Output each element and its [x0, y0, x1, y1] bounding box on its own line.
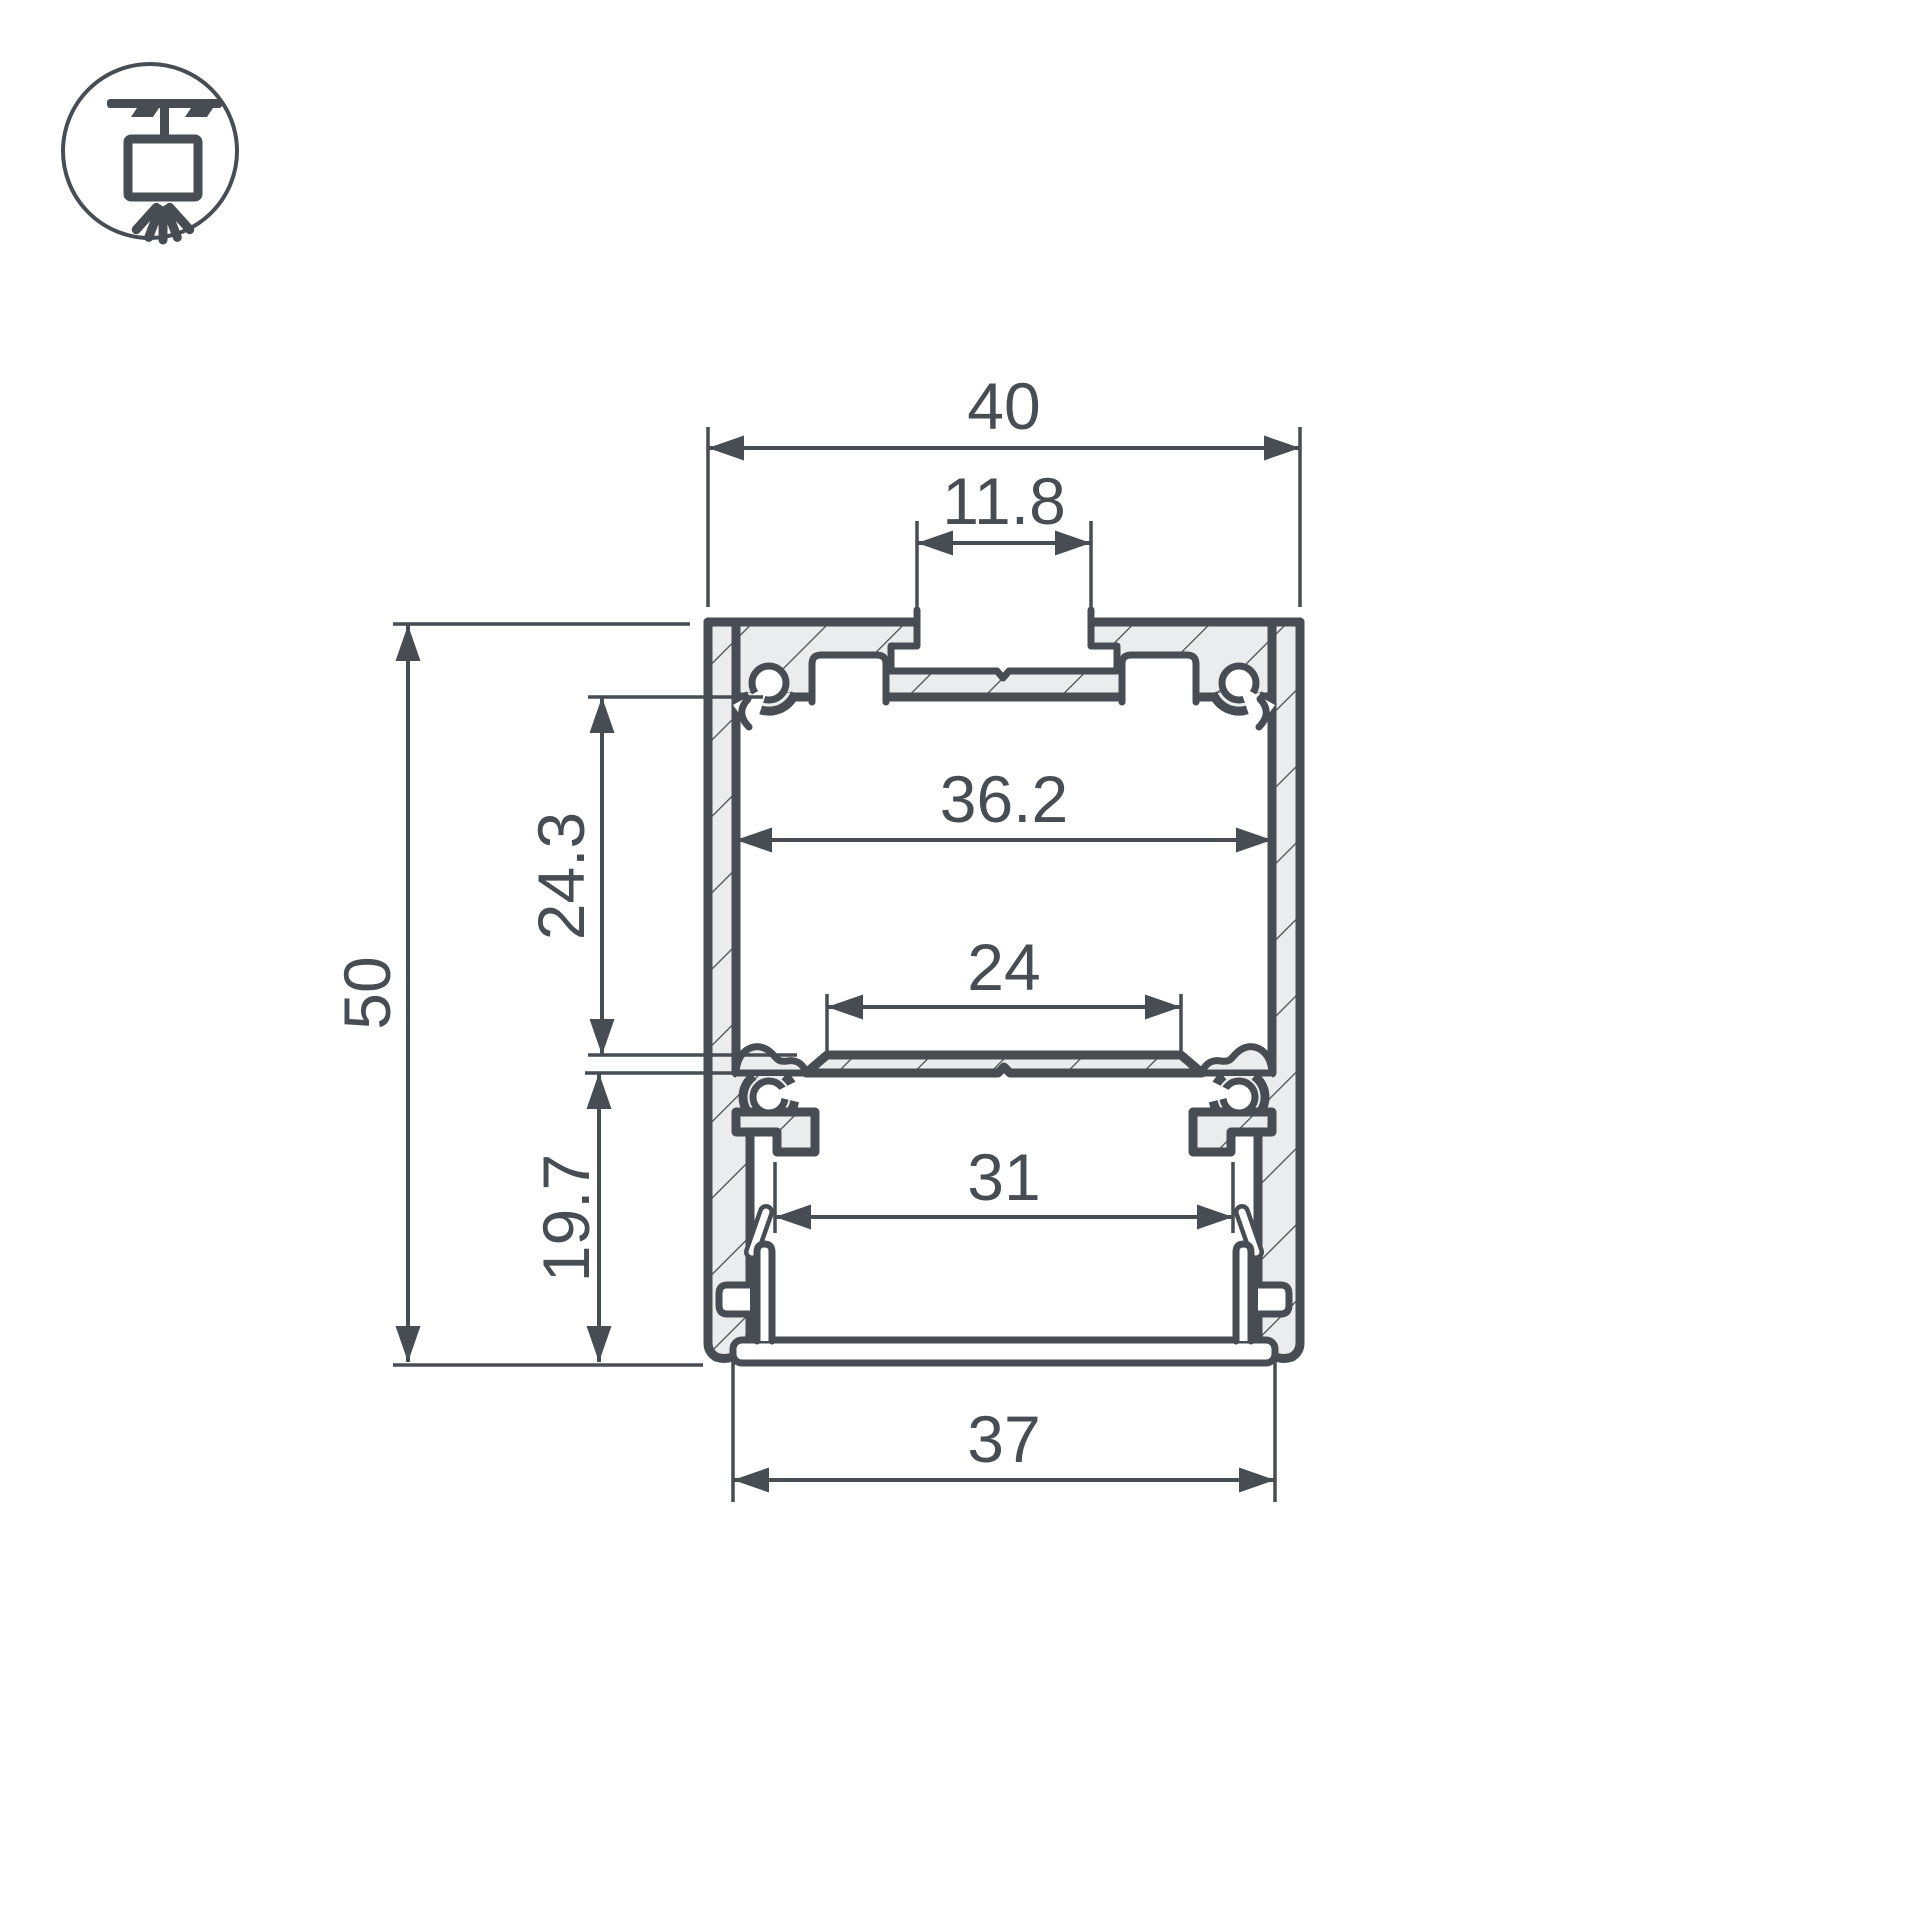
right-wall-notch [1258, 1285, 1289, 1314]
dim-led-platform-width-label: 24 [967, 930, 1040, 1004]
dim-top-slot-width-label: 11.8 [942, 464, 1066, 538]
dim-bottom-width: 37 [733, 1402, 1275, 1480]
pendant-ceiling-mount-icon [63, 64, 237, 240]
dim-lower-cavity-depth-label: 19.7 [529, 1154, 603, 1282]
right-shelf-clip [1202, 1047, 1272, 1073]
dim-upper-cavity-depth-label: 24.3 [524, 812, 598, 940]
profile-technical-drawing: 40 11.8 36.2 24 31 37 50 24.3 [0, 0, 1920, 1920]
right-screw-groove [1122, 655, 1196, 702]
left-wall [708, 622, 750, 1358]
dim-inner-width: 36.2 [736, 762, 1272, 840]
left-screw-groove [812, 655, 886, 702]
dim-inner-width-label: 36.2 [940, 762, 1068, 836]
dim-lower-opening-width-label: 31 [967, 1140, 1040, 1214]
top-mount-slot [891, 610, 1117, 678]
dim-lower-cavity-depth: 19.7 [529, 1073, 603, 1362]
icon-ceiling-tick-right [185, 108, 213, 117]
diffuser-left-leg [757, 1244, 772, 1341]
right-wall [1258, 622, 1300, 1358]
led-platform [806, 1055, 1202, 1073]
dim-top-slot-width: 11.8 [917, 464, 1091, 543]
dim-bottom-width-label: 37 [967, 1402, 1040, 1476]
icon-ceiling-tick-left [131, 108, 159, 117]
diffuser-plate [733, 1340, 1275, 1363]
icon-luminaire-box [128, 139, 198, 197]
dim-led-platform-width: 24 [827, 930, 1181, 1007]
dim-overall-height-label: 50 [330, 956, 404, 1029]
diffuser-right-leg [1236, 1244, 1251, 1341]
left-shelf-clip [736, 1047, 806, 1073]
dimension-annotations: 40 11.8 36.2 24 31 37 50 24.3 [330, 369, 1300, 1502]
dim-overall-width-label: 40 [967, 369, 1040, 443]
dim-overall-width: 40 [708, 369, 1300, 448]
drawing-page: 40 11.8 36.2 24 31 37 50 24.3 [0, 0, 1920, 1920]
dim-upper-cavity-depth: 24.3 [524, 697, 602, 1055]
left-wall-notch [719, 1285, 750, 1314]
dim-lower-opening-width: 31 [775, 1140, 1233, 1217]
dim-overall-height: 50 [330, 625, 408, 1362]
